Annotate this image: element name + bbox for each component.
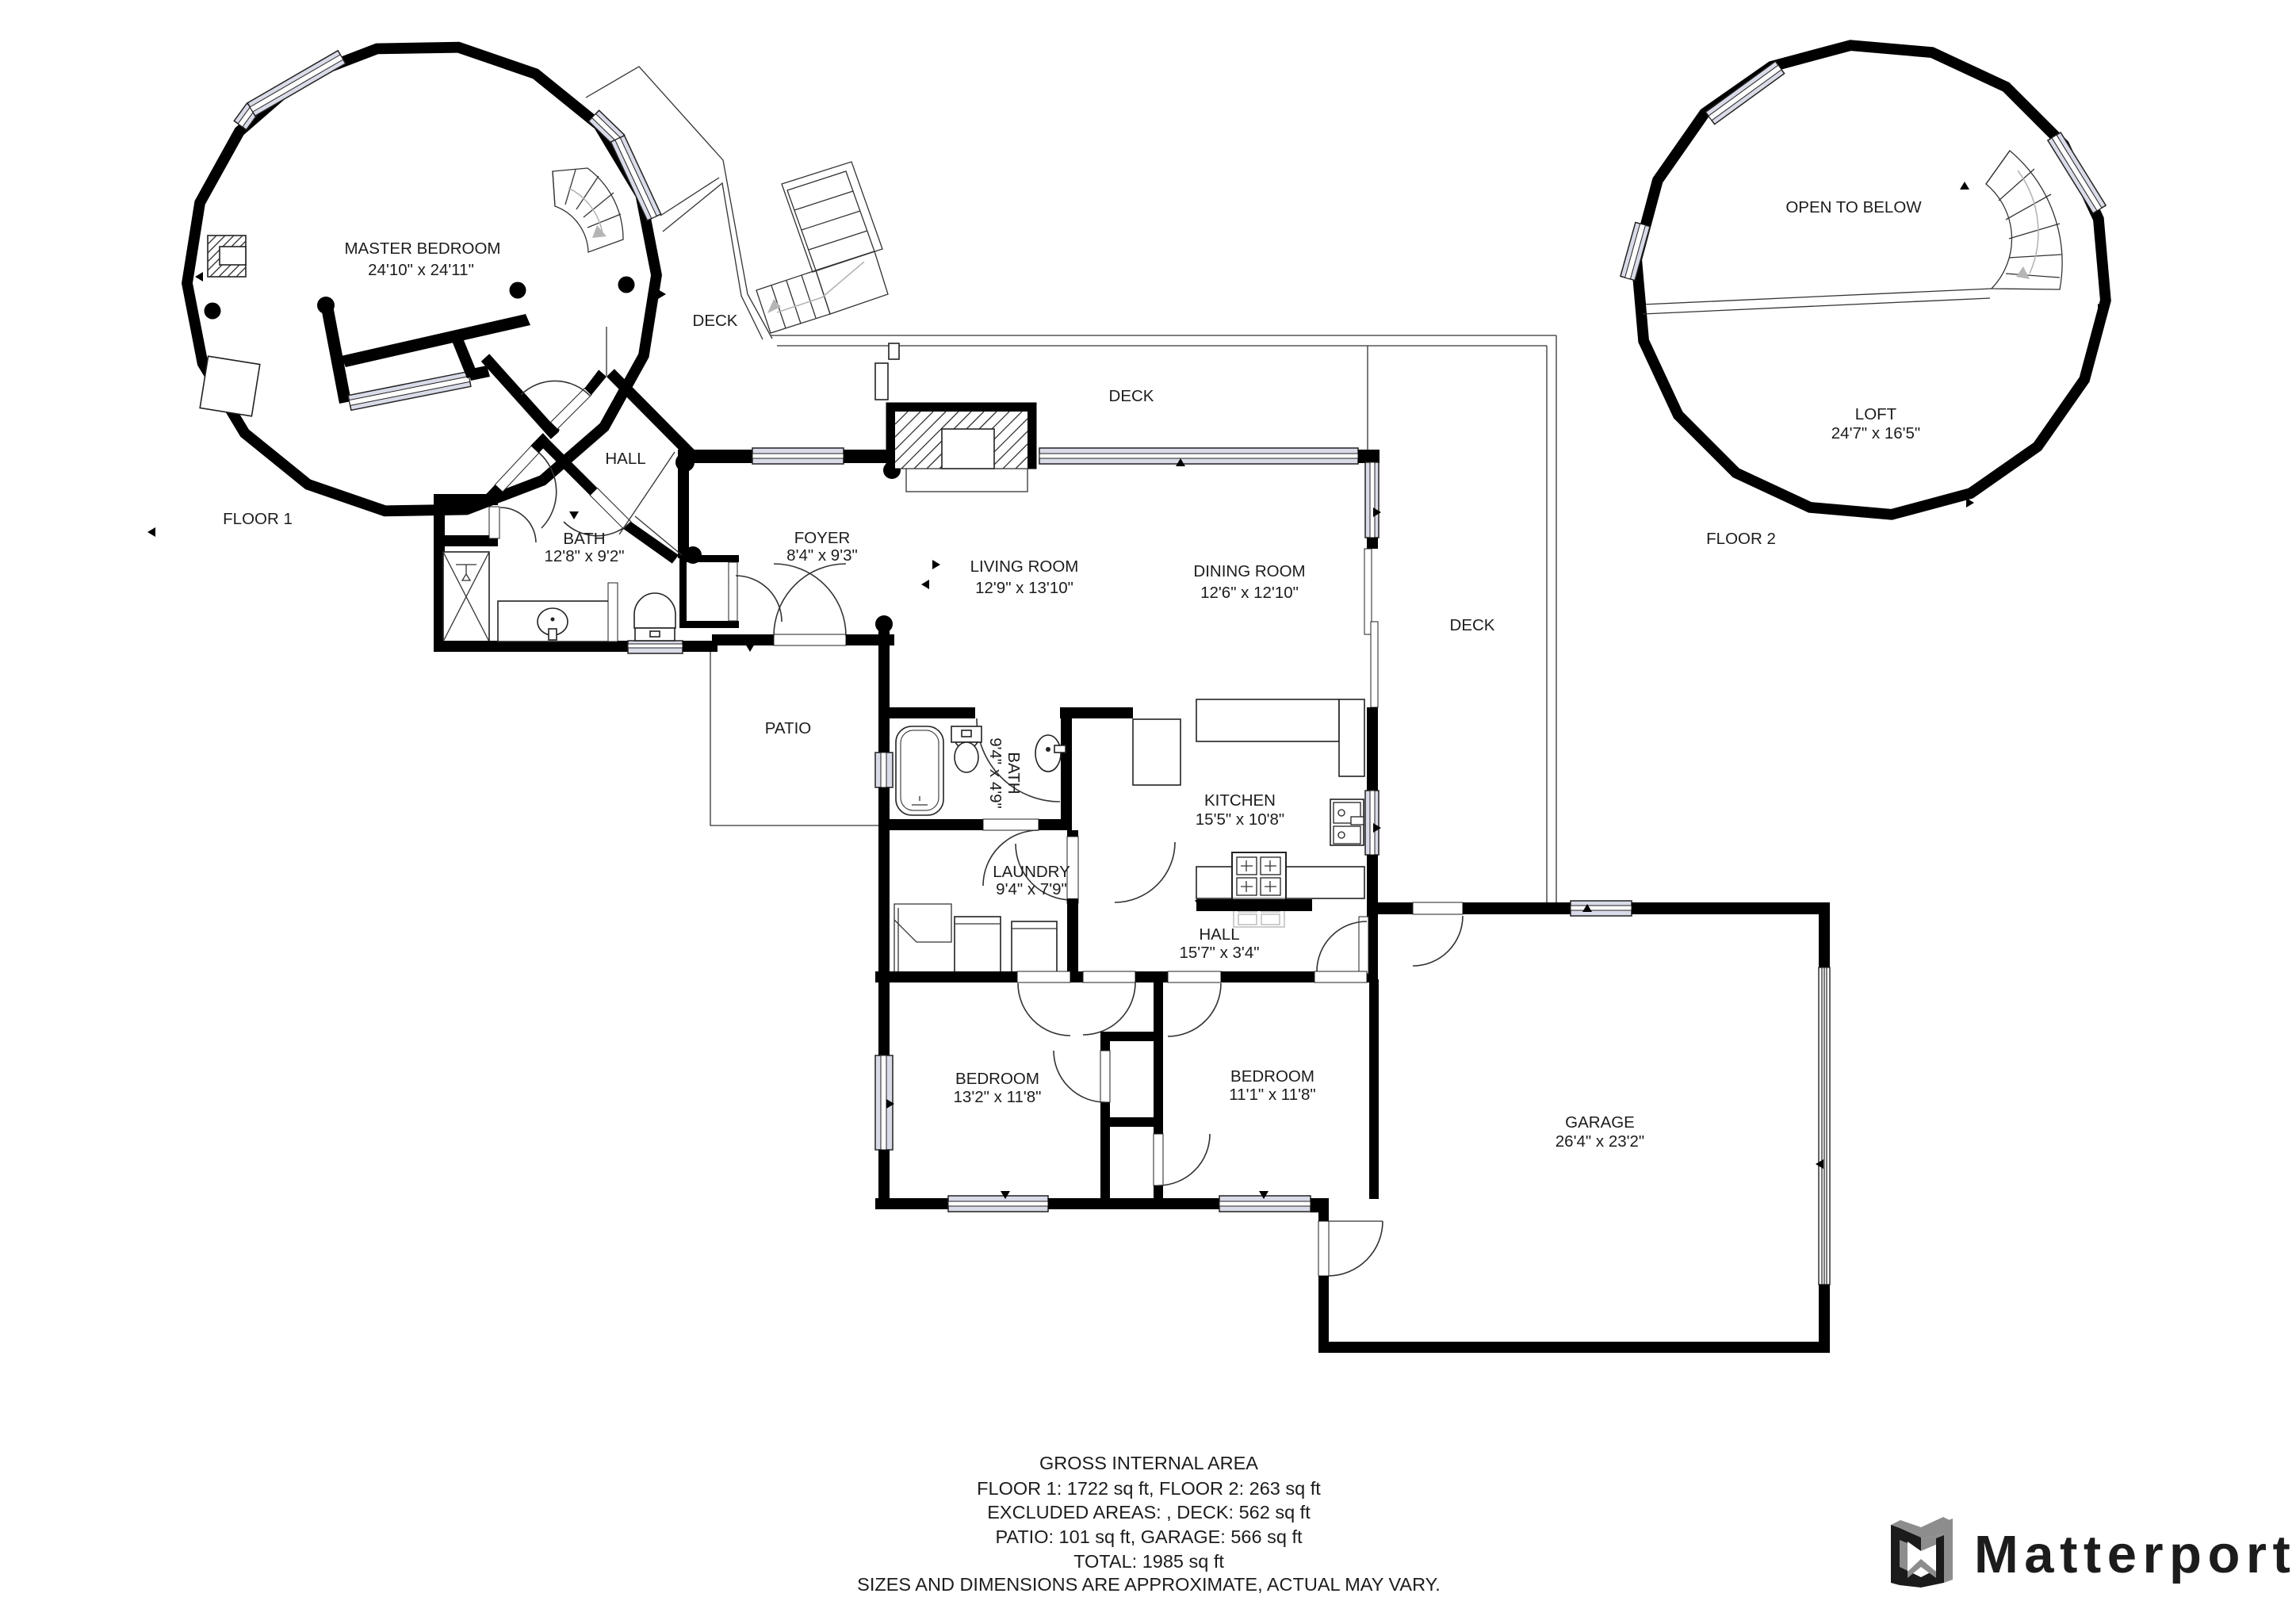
svg-text:DECK: DECK (693, 312, 738, 330)
svg-text:9'4" x 7'9": 9'4" x 7'9" (996, 880, 1067, 898)
svg-text:Matterport: Matterport (1974, 1525, 2296, 1584)
svg-text:FOYER: FOYER (794, 529, 851, 547)
svg-text:24'10" x 24'11": 24'10" x 24'11" (368, 261, 474, 279)
svg-text:11'1" x 11'8": 11'1" x 11'8" (1229, 1086, 1315, 1104)
svg-text:13'2" x 11'8": 13'2" x 11'8" (954, 1088, 1042, 1106)
svg-text:PATIO: 101 sq ft, GARAGE: 566: PATIO: 101 sq ft, GARAGE: 566 sq ft (995, 1526, 1303, 1547)
svg-text:BATH: BATH (563, 530, 605, 548)
svg-text:24'7" x 16'5": 24'7" x 16'5" (1831, 424, 1920, 442)
svg-text:DECK: DECK (1109, 387, 1154, 405)
svg-text:FLOOR 2: FLOOR 2 (1706, 530, 1776, 548)
svg-text:PATIO: PATIO (765, 719, 811, 737)
svg-text:HALL: HALL (1199, 925, 1239, 944)
svg-text:SIZES AND DIMENSIONS ARE APPRO: SIZES AND DIMENSIONS ARE APPROXIMATE, AC… (857, 1574, 1441, 1595)
svg-text:TOTAL: 1985 sq ft: TOTAL: 1985 sq ft (1073, 1551, 1224, 1572)
svg-text:8'4" x 9'3": 8'4" x 9'3" (786, 546, 858, 565)
svg-text:GARAGE: GARAGE (1565, 1113, 1635, 1132)
svg-text:BEDROOM: BEDROOM (955, 1070, 1039, 1088)
svg-text:12'6" x 12'10": 12'6" x 12'10" (1200, 584, 1299, 602)
svg-text:OPEN TO BELOW: OPEN TO BELOW (1785, 198, 1922, 216)
svg-text:MASTER BEDROOM: MASTER BEDROOM (344, 239, 500, 258)
svg-text:DINING ROOM: DINING ROOM (1193, 562, 1305, 580)
svg-text:LAUNDRY: LAUNDRY (993, 863, 1070, 881)
svg-text:26'4" x 23'2": 26'4" x 23'2" (1556, 1132, 1644, 1151)
svg-text:LIVING ROOM: LIVING ROOM (970, 557, 1079, 576)
svg-text:HALL: HALL (605, 450, 645, 468)
svg-text:15'5" x 10'8": 15'5" x 10'8" (1196, 810, 1284, 829)
svg-text:BEDROOM: BEDROOM (1230, 1067, 1314, 1086)
svg-text:FLOOR 1: FLOOR 1 (223, 510, 293, 528)
svg-text:9'4" x 4'9": 9'4" x 4'9" (986, 737, 1004, 809)
svg-text:FLOOR 1: 1722 sq ft, FLOOR 2:: FLOOR 1: 1722 sq ft, FLOOR 2: 263 sq ft (977, 1478, 1321, 1499)
svg-text:LOFT: LOFT (1855, 405, 1897, 423)
svg-text:12'9" x 13'10": 12'9" x 13'10" (975, 579, 1073, 597)
svg-text:KITCHEN: KITCHEN (1204, 791, 1276, 810)
svg-text:15'7" x 3'4": 15'7" x 3'4" (1179, 944, 1259, 962)
svg-text:GROSS INTERNAL AREA: GROSS INTERNAL AREA (1039, 1453, 1258, 1473)
svg-text:DECK: DECK (1450, 616, 1495, 634)
svg-text:EXCLUDED AREAS: , DECK: 562 sq: EXCLUDED AREAS: , DECK: 562 sq ft (987, 1502, 1311, 1522)
svg-text:BATH: BATH (1004, 752, 1023, 794)
svg-text:12'8" x 9'2": 12'8" x 9'2" (544, 547, 624, 565)
